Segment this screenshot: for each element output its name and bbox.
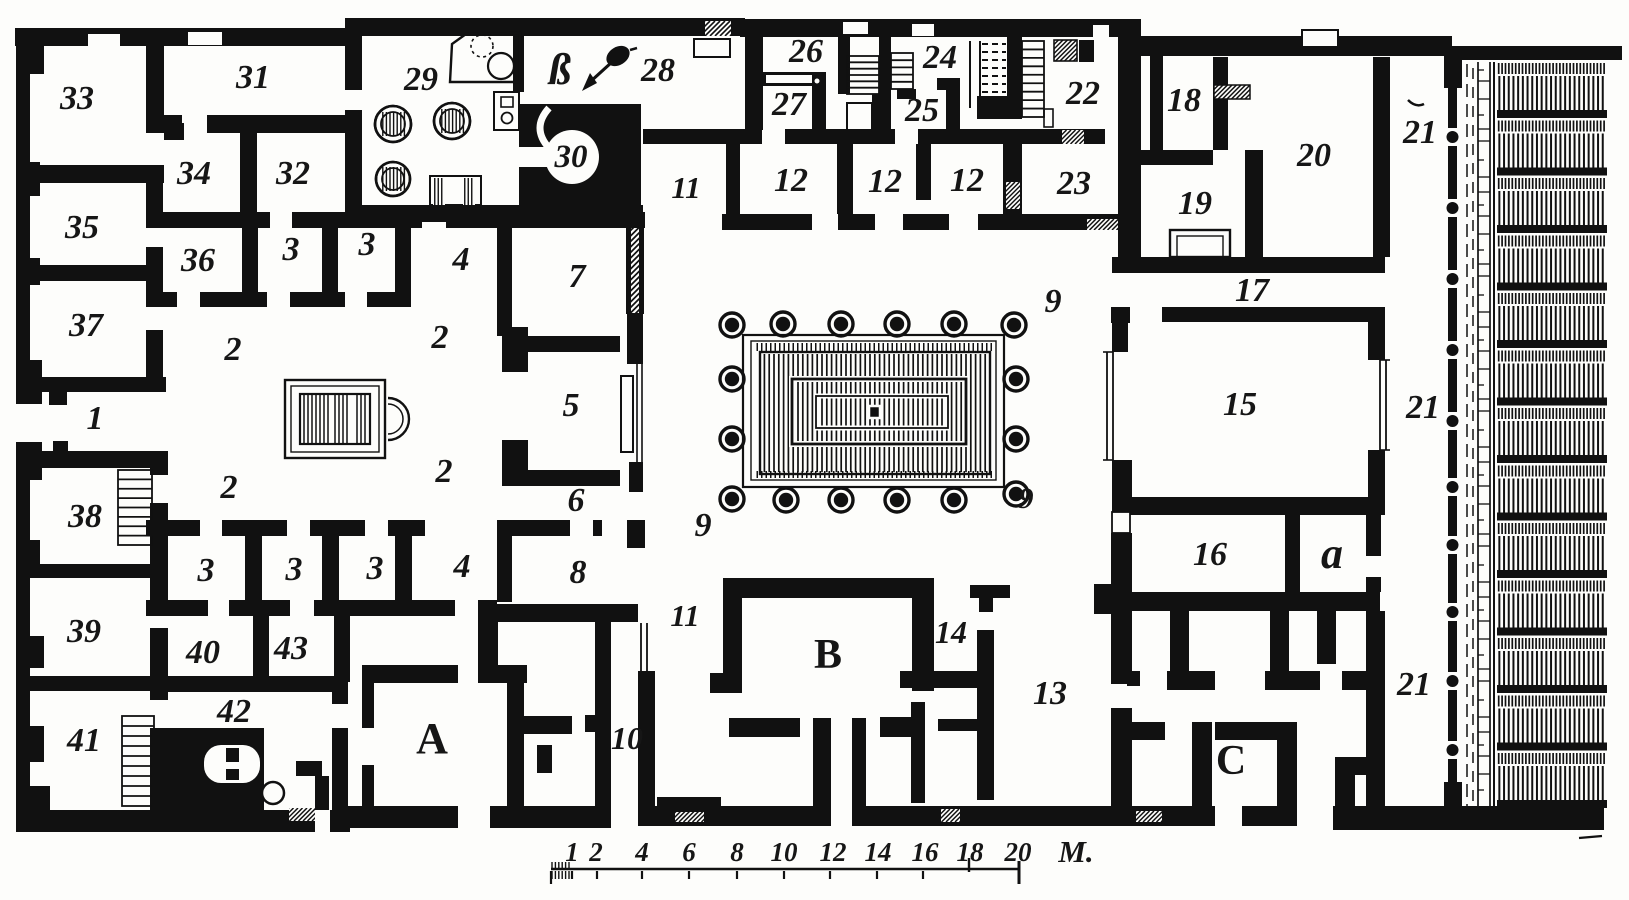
- svg-text:9: 9: [695, 507, 712, 544]
- svg-text:6: 6: [682, 837, 696, 867]
- svg-text:2: 2: [220, 469, 238, 506]
- svg-text:3: 3: [197, 552, 215, 589]
- svg-text:2: 2: [224, 331, 242, 368]
- svg-text:41: 41: [66, 722, 101, 759]
- svg-text:16: 16: [1193, 536, 1227, 573]
- svg-text:39: 39: [66, 613, 101, 650]
- svg-text:21: 21: [1402, 114, 1437, 151]
- svg-text:3: 3: [282, 231, 300, 268]
- svg-text:19: 19: [1178, 185, 1212, 222]
- svg-text:16: 16: [912, 837, 940, 867]
- svg-text:2: 2: [431, 319, 449, 356]
- svg-text:4: 4: [634, 837, 649, 867]
- svg-text:20: 20: [1004, 837, 1033, 867]
- svg-text:9: 9: [1019, 482, 1034, 515]
- svg-text:12: 12: [820, 837, 847, 867]
- svg-text:27: 27: [771, 86, 808, 123]
- svg-text:37: 37: [68, 307, 105, 344]
- svg-text:23: 23: [1056, 165, 1091, 202]
- svg-text:1: 1: [565, 837, 579, 867]
- svg-text:18: 18: [1167, 82, 1201, 119]
- svg-text:8: 8: [730, 837, 744, 867]
- svg-text:21: 21: [1405, 389, 1440, 426]
- svg-text:M.: M.: [1057, 834, 1093, 869]
- svg-text:3: 3: [358, 226, 376, 263]
- svg-text:25: 25: [904, 92, 939, 129]
- svg-text:12: 12: [950, 162, 984, 199]
- svg-text:28: 28: [640, 52, 675, 89]
- svg-text:20: 20: [1296, 137, 1331, 174]
- svg-text:3: 3: [285, 551, 303, 588]
- svg-text:C: C: [1216, 738, 1246, 784]
- svg-text:7: 7: [569, 258, 588, 295]
- svg-text:17: 17: [1235, 272, 1271, 309]
- svg-text:33: 33: [59, 80, 94, 117]
- svg-text:18: 18: [957, 837, 985, 867]
- svg-text:32: 32: [275, 155, 310, 192]
- svg-text:22: 22: [1065, 75, 1100, 112]
- svg-text:15: 15: [1223, 386, 1257, 423]
- svg-text:14: 14: [865, 837, 892, 867]
- svg-text:24: 24: [922, 39, 957, 76]
- svg-text:ß: ß: [547, 45, 571, 94]
- svg-text:9: 9: [1045, 283, 1062, 320]
- svg-text:36: 36: [180, 242, 215, 279]
- svg-text:13: 13: [1033, 675, 1067, 712]
- svg-text:4: 4: [452, 241, 470, 278]
- svg-text:10: 10: [611, 720, 643, 756]
- svg-text:35: 35: [64, 209, 99, 246]
- svg-text:B: B: [814, 632, 842, 678]
- svg-text:11: 11: [671, 170, 700, 205]
- svg-text:10: 10: [771, 837, 799, 867]
- svg-text:26: 26: [788, 33, 823, 70]
- svg-text:34: 34: [176, 155, 211, 192]
- svg-text:a: a: [1321, 529, 1343, 578]
- svg-text:12: 12: [868, 163, 902, 200]
- svg-text:11: 11: [670, 598, 699, 633]
- svg-text:2: 2: [435, 453, 453, 490]
- svg-text:30: 30: [554, 139, 588, 175]
- svg-text:3: 3: [366, 550, 384, 587]
- svg-text:31: 31: [235, 59, 270, 96]
- svg-text:42: 42: [216, 693, 251, 730]
- svg-text:2: 2: [588, 837, 603, 867]
- svg-text:12: 12: [774, 162, 808, 199]
- svg-text:29: 29: [403, 61, 438, 98]
- svg-text:6: 6: [568, 482, 585, 519]
- svg-text:5: 5: [563, 387, 580, 424]
- svg-text:1: 1: [87, 400, 104, 437]
- svg-text:40: 40: [185, 634, 220, 671]
- svg-text:43: 43: [273, 630, 308, 667]
- svg-text:4: 4: [453, 548, 471, 585]
- svg-text:8: 8: [570, 554, 587, 591]
- svg-text:14: 14: [935, 614, 967, 650]
- svg-text:38: 38: [67, 498, 102, 535]
- svg-text:21: 21: [1396, 666, 1431, 703]
- svg-text:A: A: [416, 714, 448, 763]
